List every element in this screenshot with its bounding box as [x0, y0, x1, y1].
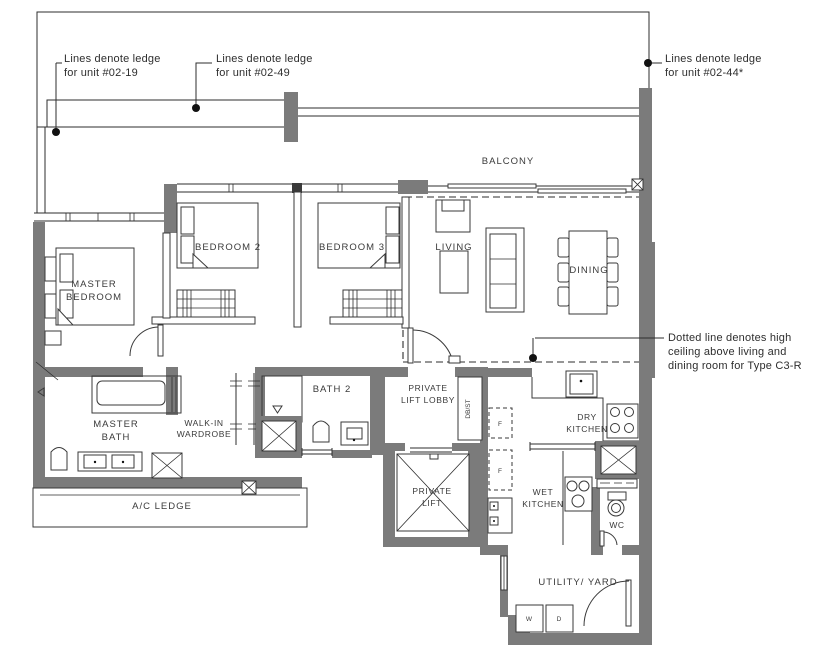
label-wet-kitchen-line1: WET — [533, 487, 554, 497]
label-balcony: BALCONY — [482, 156, 534, 167]
label-dry-kitchen-line2: KITCHEN — [566, 424, 608, 434]
wc-fixtures — [600, 492, 626, 546]
label-private-lift-lobby-line2: LIFT LOBBY — [401, 395, 455, 405]
annotation-ledge-02-19-line1: Lines denote ledge — [64, 53, 161, 65]
label-db-st: DB/ST — [465, 399, 472, 418]
annotation-ledge-02-44-line2: for unit #02-44* — [665, 67, 744, 79]
label-private-lift-lobby-line1: PRIVATE — [408, 383, 447, 393]
label-living: LIVING — [435, 242, 472, 253]
label-master-bedroom-line2: BEDROOM — [66, 292, 122, 303]
label-bath2: BATH 2 — [313, 384, 352, 395]
bedroom3-furniture — [318, 203, 402, 317]
label-master-bedroom-line1: MASTER — [71, 279, 117, 290]
label-fridge2: F — [498, 468, 502, 475]
label-master-bath-line2: BATH — [102, 432, 131, 443]
living-furniture — [436, 200, 524, 312]
label-dryer: D — [557, 616, 562, 623]
label-dining: DINING — [569, 265, 608, 276]
annotation-ledge-02-49-line1: Lines denote ledge — [216, 53, 313, 65]
label-bedroom3: BEDROOM 3 — [319, 242, 385, 253]
ledge-boundary-lines — [37, 12, 649, 213]
annotation-high-ceiling-line2: ceiling above living and — [668, 346, 787, 358]
floorplan-drawing: Lines denote ledge for unit #02-19 Lines… — [0, 0, 816, 651]
label-ac-ledge: A/C LEDGE — [132, 501, 192, 512]
label-fridge1: F — [498, 421, 502, 428]
label-wc: WC — [609, 520, 624, 530]
label-master-bath-line1: MASTER — [93, 419, 139, 430]
label-dry-kitchen-line1: DRY — [577, 412, 597, 422]
label-private-lift-line1: PRIVATE — [412, 486, 451, 496]
label-utility-yard: UTILITY/ YARD — [538, 577, 617, 588]
annotation-ledge-02-49-line2: for unit #02-49 — [216, 67, 290, 79]
floorplan-page: Lines denote ledge for unit #02-19 Lines… — [0, 0, 816, 651]
entrance-door — [408, 328, 460, 363]
annotation-high-ceiling-line1: Dotted line denotes high — [668, 332, 791, 344]
master-bedroom-door — [130, 325, 163, 356]
annotation-ledge-02-44-line1: Lines denote ledge — [665, 53, 762, 65]
label-walkin-wardrobe-line2: WARDROBE — [177, 429, 232, 439]
annotation-high-ceiling-line3: dining room for Type C3-R — [668, 360, 802, 372]
bedroom2-furniture — [177, 203, 258, 317]
label-private-lift-line2: LIFT — [422, 498, 442, 508]
annotation-ledge-02-19-line2: for unit #02-19 — [64, 67, 138, 79]
label-walkin-wardrobe-line1: WALK-IN — [184, 418, 223, 428]
label-bedroom2: BEDROOM 2 — [195, 242, 261, 253]
walls — [33, 88, 655, 645]
label-washer: W — [526, 616, 533, 623]
label-wet-kitchen-line2: KITCHEN — [522, 499, 564, 509]
